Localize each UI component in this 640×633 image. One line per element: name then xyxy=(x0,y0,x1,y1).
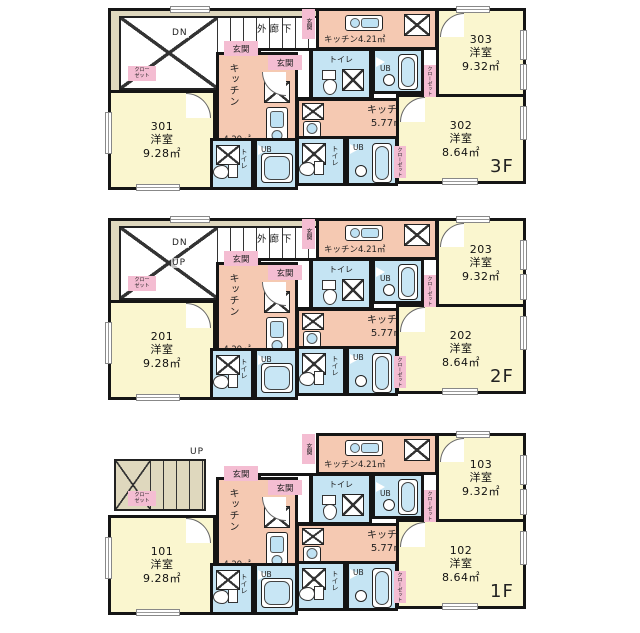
closet-label: クローゼット xyxy=(394,571,406,603)
bathtub-icon xyxy=(372,143,392,183)
window xyxy=(520,274,527,300)
window xyxy=(520,30,527,60)
kitchen-upper: キッチン4.21㎡ xyxy=(316,433,438,475)
floor-label: 2F xyxy=(490,366,532,387)
toilet-label: トイレ xyxy=(239,573,249,594)
kitchen-label: キッチン xyxy=(225,63,240,107)
kitchen-sink-icon xyxy=(345,225,383,241)
unit-number: 202 xyxy=(450,329,473,342)
room-type: 洋室 xyxy=(151,558,174,571)
stair-up-label: UP xyxy=(190,447,204,457)
toilet-icon xyxy=(300,370,324,386)
bathtub-icon xyxy=(398,264,418,300)
closet-label: クローゼット xyxy=(424,65,436,97)
room-area: 8.64㎡ xyxy=(442,356,480,369)
toilet-icon xyxy=(321,280,337,304)
toilet-icon xyxy=(214,588,238,604)
room-area: 8.64㎡ xyxy=(442,571,480,584)
window xyxy=(442,603,478,610)
stair-treads xyxy=(150,461,204,509)
bath-room: UB xyxy=(254,563,298,615)
laundry-space-icon xyxy=(216,355,240,375)
closet-label-line2: ゼット xyxy=(134,73,149,79)
bath-room: UB xyxy=(346,561,398,611)
unit-number: 102 xyxy=(450,544,473,557)
bath-room: UB xyxy=(346,136,398,186)
bath-label: UB xyxy=(353,143,364,152)
toilet-icon xyxy=(214,163,238,179)
toilet-label: トイレ xyxy=(330,570,340,591)
toilet-room: トイレ xyxy=(296,561,346,611)
window xyxy=(136,394,180,401)
window xyxy=(105,537,112,579)
closet-label: クローゼット xyxy=(394,146,406,178)
toilet-room: トイレ xyxy=(210,138,254,190)
laundry-space-icon xyxy=(216,145,240,165)
entrance-label: 玄関 xyxy=(268,265,302,280)
kitchen-sink-icon xyxy=(345,440,383,456)
toilet-room: トイレ xyxy=(296,136,346,186)
toilet-label: トイレ xyxy=(313,264,369,275)
room-type: 洋室 xyxy=(470,256,493,269)
bathtub-icon xyxy=(261,578,293,608)
unit-number: 301 xyxy=(151,120,174,133)
toilet-room: トイレ xyxy=(310,473,372,525)
laundry-space-icon xyxy=(342,494,364,516)
room-type: 洋室 xyxy=(450,342,473,355)
bathtub-icon xyxy=(261,363,293,393)
bath-label: UB xyxy=(380,274,391,283)
room-type: 洋室 xyxy=(470,471,493,484)
toilet-icon xyxy=(300,585,324,601)
entrance-label: 玄関 xyxy=(302,9,315,39)
room-type: 洋室 xyxy=(470,46,493,59)
bathtub-icon xyxy=(398,479,418,515)
entrance-label: 玄関 xyxy=(302,219,315,249)
unit-number: 201 xyxy=(151,330,174,343)
unit-number: 203 xyxy=(470,243,493,256)
toilet-room: トイレ xyxy=(210,563,254,615)
window xyxy=(105,112,112,154)
washbasin-icon xyxy=(383,74,395,86)
kitchen-upper-label: キッチン4.21㎡ xyxy=(324,243,385,255)
closet-label: クローゼット xyxy=(128,66,156,81)
room-area: 9.28㎡ xyxy=(143,572,181,585)
stove-icon xyxy=(302,103,324,120)
stove-icon xyxy=(404,14,430,36)
closet-label-line2: ゼット xyxy=(134,283,149,289)
toilet-label: トイレ xyxy=(239,148,249,169)
closet-label: クローゼット xyxy=(394,356,406,388)
room-type: 洋室 xyxy=(151,343,174,356)
room-area: 9.32㎡ xyxy=(462,270,500,283)
bath-room: UB xyxy=(346,346,398,396)
window xyxy=(442,388,478,395)
stove-icon xyxy=(404,439,430,461)
window xyxy=(136,609,180,616)
bath-room: UB xyxy=(254,138,298,190)
window xyxy=(520,106,527,140)
bathtub-icon xyxy=(372,568,392,608)
toilet-icon xyxy=(321,495,337,519)
stove-icon xyxy=(302,313,324,330)
floor-plan: UP UP キッチン4.21㎡ 玄関 玄関 玄関 トイレ xyxy=(106,433,530,623)
bath-label: UB xyxy=(380,489,391,498)
toilet-label: トイレ xyxy=(330,145,340,166)
kitchen-upper: キッチン4.21㎡ xyxy=(316,218,438,260)
entrance-label: 玄関 xyxy=(268,480,302,495)
closet-label: クローゼット xyxy=(424,275,436,307)
toilet-label: トイレ xyxy=(239,358,249,379)
bath-room: UB xyxy=(372,48,424,94)
window xyxy=(520,64,527,90)
window xyxy=(105,322,112,364)
corridor-label: 外廊下 xyxy=(257,21,295,35)
toilet-room: トイレ xyxy=(310,48,372,100)
kitchen-label: キッチン xyxy=(225,488,240,532)
window xyxy=(136,184,180,191)
window xyxy=(442,178,478,185)
floor-plan: DN 外廊下 キッチン4.21㎡ 玄関 玄関 玄関 トイレ xyxy=(106,8,530,198)
toilet-label: トイレ xyxy=(313,479,369,490)
room-area: 8.64㎡ xyxy=(442,146,480,159)
window xyxy=(456,431,490,438)
toilet-room: トイレ xyxy=(210,348,254,400)
bathtub-icon xyxy=(261,153,293,183)
laundry-space-icon xyxy=(216,570,240,590)
bathtub-icon xyxy=(398,54,418,90)
washbasin-icon xyxy=(355,590,367,602)
floor-plan-sheet: DN 外廊下 キッチン4.21㎡ 玄関 玄関 玄関 トイレ xyxy=(0,0,640,633)
room-type: 洋室 xyxy=(151,133,174,146)
toilet-label: トイレ xyxy=(330,355,340,376)
window xyxy=(170,216,210,223)
kitchen-upper-label: キッチン4.21㎡ xyxy=(324,33,385,45)
window xyxy=(520,531,527,565)
closet-label-line2: ゼット xyxy=(134,498,149,504)
window xyxy=(520,316,527,350)
laundry-space-icon xyxy=(342,279,364,301)
room-area: 9.32㎡ xyxy=(462,60,500,73)
stair-down-label: DN xyxy=(171,238,189,248)
washbasin-icon xyxy=(355,165,367,177)
kitchen-sink-icon xyxy=(345,15,383,31)
entrance-label: 玄関 xyxy=(224,466,258,481)
bath-label: UB xyxy=(380,64,391,73)
entrance-label: 玄関 xyxy=(268,55,302,70)
bathtub-icon xyxy=(372,353,392,393)
room-area: 9.28㎡ xyxy=(143,357,181,370)
toilet-icon xyxy=(300,160,324,176)
stove-icon xyxy=(404,224,430,246)
window xyxy=(456,6,490,13)
window xyxy=(520,455,527,485)
stove-icon xyxy=(302,528,324,545)
washbasin-icon xyxy=(355,375,367,387)
window xyxy=(170,6,210,13)
stair-up-label: UP xyxy=(171,258,187,268)
bath-room: UB xyxy=(372,473,424,519)
toilet-icon xyxy=(214,373,238,389)
window xyxy=(520,240,527,270)
window xyxy=(520,489,527,515)
kitchen-upper-label: キッチン4.21㎡ xyxy=(324,458,385,470)
room-area: 9.28㎡ xyxy=(143,147,181,160)
washbasin-icon xyxy=(383,284,395,296)
toilet-label: トイレ xyxy=(313,54,369,65)
bath-room: UB xyxy=(372,258,424,304)
unit-number: 303 xyxy=(470,33,493,46)
entrance-label: 玄関 xyxy=(302,434,315,464)
floor-label: 3F xyxy=(490,156,532,177)
laundry-space-icon xyxy=(342,69,364,91)
bath-label: UB xyxy=(353,353,364,362)
room-area: 9.32㎡ xyxy=(462,485,500,498)
bath-room: UB xyxy=(254,348,298,400)
toilet-room: トイレ xyxy=(296,346,346,396)
kitchen-label: キッチン xyxy=(225,273,240,317)
unit-number: 103 xyxy=(470,458,493,471)
stair-down-label: DN xyxy=(171,28,189,38)
room-type: 洋室 xyxy=(450,132,473,145)
unit-number: 101 xyxy=(151,545,174,558)
washbasin-icon xyxy=(383,499,395,511)
closet-label: クローゼット xyxy=(128,276,156,291)
entrance-label: 玄関 xyxy=(224,251,258,266)
floor-plan: DN UP 外廊下 UP キッチン4.21㎡ 玄関 玄関 玄関 トイレ xyxy=(106,218,530,408)
room-type: 洋室 xyxy=(450,557,473,570)
closet-label: クローゼット xyxy=(128,491,156,506)
closet-label: クローゼット xyxy=(424,490,436,522)
bath-label: UB xyxy=(353,568,364,577)
kitchen-upper: キッチン4.21㎡ xyxy=(316,8,438,50)
floor-label: 1F xyxy=(490,581,532,602)
window xyxy=(456,216,490,223)
corridor-label: 外廊下 xyxy=(257,231,295,245)
unit-number: 302 xyxy=(450,119,473,132)
toilet-icon xyxy=(321,70,337,94)
entrance-label: 玄関 xyxy=(224,41,258,56)
toilet-room: トイレ xyxy=(310,258,372,310)
